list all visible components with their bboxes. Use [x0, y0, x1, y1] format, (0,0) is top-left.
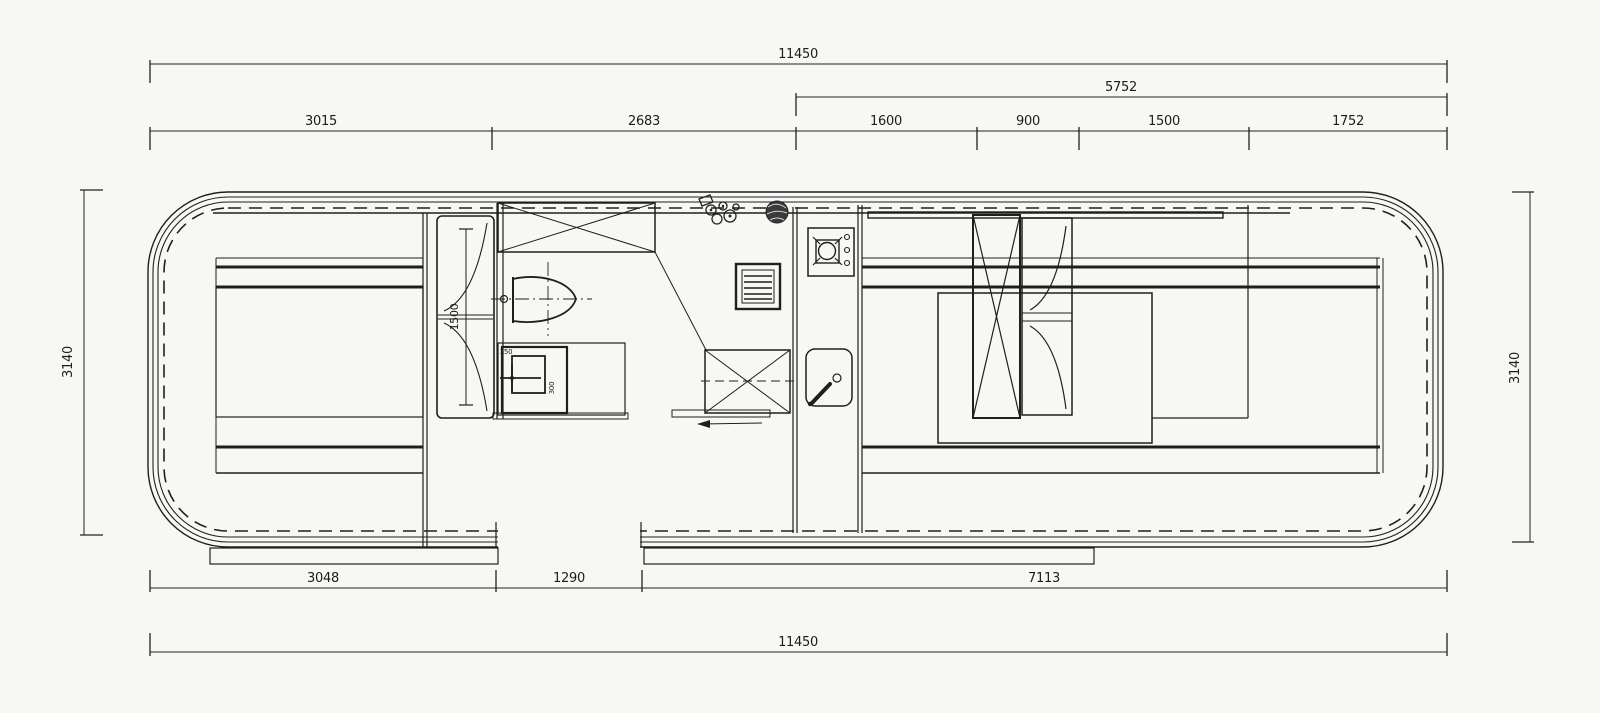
dim-seg-label: 3015 [305, 114, 337, 129]
bench-sofa-right [862, 258, 1383, 473]
hull-shell [148, 192, 1443, 547]
plant-dark [766, 201, 788, 223]
vent-grille [736, 264, 780, 309]
deck-step-left [210, 548, 498, 564]
floor-plan-canvas: 11450 5752 3015 2683 1600 900 1500 1752 … [0, 0, 1600, 709]
bifold-cabinet [1022, 218, 1072, 415]
dimension-bottom-segments [150, 570, 1447, 592]
dim-right-height-label: 3140 [1508, 352, 1523, 384]
cooktop [808, 228, 854, 276]
dimension-top-group [796, 93, 1447, 116]
dim-seg-label: 1600 [870, 114, 902, 129]
dim-seg-label: 1752 [1332, 114, 1364, 129]
wardrobe [973, 215, 1020, 418]
shower-tray [498, 203, 655, 252]
entry-opening [498, 519, 640, 563]
dim-bottom-total-label: 11450 [778, 635, 818, 650]
double-bed [938, 293, 1152, 443]
dim-top-group-label: 5752 [1105, 80, 1137, 95]
toilet [491, 262, 592, 336]
bench-sofa-left [216, 258, 423, 473]
dim-seg-label: 7113 [1028, 571, 1060, 586]
dim-left-height-label: 3140 [61, 346, 76, 378]
sofa-1500 [437, 216, 494, 418]
bathroom-door-swing [655, 252, 706, 350]
deck-step-right [644, 548, 1094, 564]
dim-seg-label: 3048 [307, 571, 339, 586]
dim-basin-width-label: 350 [500, 348, 512, 356]
dim-seg-label: 1290 [553, 571, 585, 586]
dim-seg-label: 2683 [628, 114, 660, 129]
folding-table [701, 350, 794, 413]
dim-basin-depth-label: 300 [548, 382, 556, 394]
dimension-top-segments [150, 127, 1447, 150]
dimension-top-total [150, 60, 1447, 83]
wash-basin-cabinet [493, 343, 628, 419]
kitchen-sink [806, 349, 852, 406]
dim-seg-label: 900 [1016, 114, 1040, 129]
dim-sofa-label: 1500 [448, 303, 461, 330]
dimension-left-height [80, 190, 103, 535]
plant [699, 195, 739, 224]
partition-walls [423, 203, 1248, 547]
dim-seg-label: 1500 [1148, 114, 1180, 129]
dim-top-total-label: 11450 [778, 47, 818, 62]
